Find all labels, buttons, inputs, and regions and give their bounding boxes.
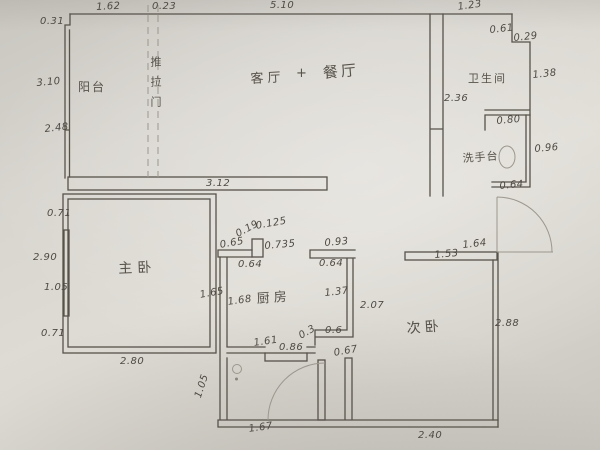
dimension-label: 0.125	[255, 216, 288, 232]
dimension-label: 1.38	[532, 67, 557, 80]
dimension-label: 0.29	[513, 30, 538, 43]
dimension-label: 0.86	[279, 342, 303, 353]
dimension-label: 0.64	[499, 179, 524, 192]
dimension-label: 5.10	[270, 0, 294, 11]
dimension-label: 1.61	[253, 335, 279, 349]
dimension-label: 0.67	[333, 344, 359, 359]
dimension-label: 3.10	[36, 76, 61, 89]
dimension-label: 1.37	[324, 285, 349, 298]
dimension-label: 3.12	[206, 178, 230, 189]
dimension-label: 0.71	[41, 328, 65, 339]
dimension-label: 0.71	[47, 208, 71, 219]
dimension-label: 2.40	[418, 430, 442, 441]
dimension-label: 0.735	[264, 238, 296, 252]
dimension-label: 1.62	[96, 1, 121, 13]
dimension-label: 0.6	[325, 325, 342, 336]
dimension-label: 1.05	[193, 373, 211, 399]
washstand-label: 洗手台	[462, 147, 499, 165]
dimension-label: 0.64	[319, 258, 343, 269]
dimension-label: 0.61	[489, 22, 514, 35]
dimension-label: 2.07	[360, 300, 384, 311]
dimension-label: 0.31	[40, 16, 64, 27]
labels-layer: 阳台客厅+餐厅推拉门卫生间洗手台主卧厨房次卧1.620.235.101.230.…	[0, 0, 600, 450]
dimension-label: 0.64	[238, 259, 262, 270]
dining-room-label: 餐厅	[322, 59, 360, 83]
dimension-label: 2.88	[495, 318, 519, 329]
floor-plan-photo: { "palette": { "paper": "#d6d3cc", "penc…	[0, 0, 600, 450]
balcony-label: 阳台	[78, 78, 106, 95]
master-bedroom-label: 主卧	[118, 257, 157, 278]
dimension-label: 0.3	[297, 323, 318, 341]
dimension-label: 2.80	[120, 356, 144, 367]
dimension-label: 2.48	[44, 121, 69, 134]
kitchen-label: 厨房	[256, 286, 291, 307]
plus-sign: +	[296, 66, 307, 81]
sliding-door-label: 推拉门	[147, 56, 163, 116]
dimension-label: 0.23	[152, 1, 176, 12]
bathroom-label: 卫生间	[468, 70, 507, 86]
dimension-label: 2.90	[33, 252, 57, 263]
dimension-label: 1.65	[199, 286, 225, 301]
dimension-label: 2.36	[444, 93, 468, 104]
dimension-label: 1.64	[462, 237, 487, 250]
dimension-label: 1.05	[44, 282, 68, 293]
second-bedroom-label: 次卧	[406, 315, 443, 337]
dimension-label: 0.96	[534, 142, 559, 155]
dimension-label: 1.23	[457, 0, 483, 13]
living-room-label: 客厅	[250, 66, 285, 87]
dimension-label: 1.53	[434, 248, 459, 261]
dimension-label: 0.80	[496, 114, 521, 127]
dimension-label: 0.93	[324, 236, 349, 249]
dimension-label: 1.67	[248, 421, 274, 435]
dimension-label: 1.68	[227, 294, 253, 308]
